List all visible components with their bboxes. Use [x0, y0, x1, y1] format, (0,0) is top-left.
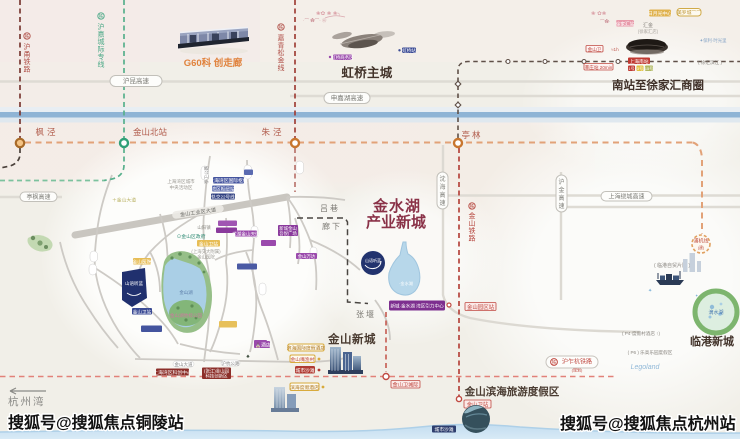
svg-text:沪杭公路: 沪杭公路 — [222, 360, 240, 367]
svg-text:金山万达: 金山万达 — [298, 253, 316, 260]
svg-text:金山医院: 金山医院 — [197, 254, 215, 261]
svg-text:亭林: 亭林 — [461, 130, 482, 140]
svg-text:金山北站: 金山北站 — [133, 127, 168, 137]
svg-text:申嘉湖高速: 申嘉湖高速 — [331, 93, 364, 102]
svg-text:汇金: 汇金 — [643, 22, 653, 29]
svg-text:吾悦广场: 吾悦广场 — [279, 230, 297, 237]
svg-text:搜狐号@搜狐焦点铜陵站: 搜狐号@搜狐焦点铜陵站 — [8, 413, 184, 432]
svg-text:山语听蓝: 山语听蓝 — [365, 257, 381, 263]
svg-text:G60科 创走廊: G60科 创走廊 — [184, 57, 243, 69]
svg-text:沪乍杭铁路: 沪乍杭铁路 — [562, 358, 592, 366]
svg-text:金山铁路: 金山铁路 — [469, 211, 476, 243]
svg-text:( P4·度假村酒店 ↑): ( P4·度假村酒店 ↑) — [622, 330, 660, 337]
svg-text:＋金山大道: ＋金山大道 — [112, 197, 136, 204]
svg-text:杭州湾: 杭州湾 — [8, 395, 46, 408]
svg-text:美罗城⌒⌒: 美罗城⌒⌒ — [677, 9, 701, 16]
svg-text:浦机线: 浦机线 — [693, 238, 708, 245]
svg-text:轨交22号线: 轨交22号线 — [211, 193, 235, 200]
svg-text:15号: 15号 — [645, 65, 653, 71]
svg-text:Legoland: Legoland — [631, 364, 661, 371]
svg-text:金山卫站: 金山卫站 — [199, 241, 218, 248]
svg-text:金山园区站: 金山园区站 — [467, 303, 495, 311]
svg-text:中央活动区: 中央活动区 — [170, 184, 193, 191]
svg-text:铁: 铁 — [552, 359, 557, 366]
svg-text:金山医院: 金山医院 — [132, 259, 151, 266]
svg-text:金山新城: 金山新城 — [327, 332, 376, 346]
svg-text:廊下: 廊下 — [322, 221, 342, 231]
svg-text:搜狐号@搜狐焦点杭州站: 搜狐号@搜狐焦点杭州站 — [560, 414, 736, 433]
svg-text:·金水湖: ·金水湖 — [399, 280, 413, 287]
svg-text:上海南站: 上海南站 — [629, 58, 648, 65]
svg-text:徐家汇站: 徐家汇站 — [616, 20, 635, 27]
svg-text:铁: 铁 — [25, 33, 30, 40]
svg-text:滨海国际度假酒店: 滨海国际度假酒店 — [287, 345, 326, 352]
svg-text:山阳镇: 山阳镇 — [197, 224, 211, 231]
svg-text:⌒✿·: ⌒✿· — [600, 19, 611, 24]
svg-text:金水湖: 金水湖 — [372, 197, 421, 215]
svg-text:金山湖: 金山湖 — [179, 289, 193, 296]
svg-text:1号: 1号 — [628, 65, 634, 71]
svg-text:城市沙滩: 城市沙滩 — [295, 367, 314, 374]
svg-text:虹桥商务区: 虹桥商务区 — [332, 54, 355, 61]
svg-text:金山卫站: 金山卫站 — [133, 308, 152, 315]
svg-text:滨海度假酒店: 滨海度假酒店 — [290, 384, 319, 391]
svg-text:上海湾区科创中心: 上海湾区科创中心 — [153, 369, 192, 376]
svg-text:金山湖地标公园: 金山湖地标公园 — [170, 312, 203, 319]
svg-text:枫泾: 枫泾 — [35, 127, 58, 137]
svg-text:❀ ✿❀: ❀ ✿❀ — [591, 10, 607, 17]
svg-text:金山嘴渔村: 金山嘴渔村 — [291, 356, 315, 363]
svg-text:上海湾区国际枢纽: 上海湾区国际枢纽 — [209, 177, 248, 184]
svg-text:虹桥站: 虹桥站 — [402, 47, 416, 54]
svg-text:虹桥主城: 虹桥主城 — [341, 65, 392, 80]
svg-text:铁: 铁 — [470, 203, 475, 210]
svg-text:上海湾区城市: 上海湾区城市 — [167, 178, 195, 185]
svg-text:沪甬铁路: 沪甬铁路 — [24, 42, 31, 74]
svg-text:铁: 铁 — [99, 13, 104, 20]
svg-text:≈1h: ≈1h — [611, 47, 619, 52]
svg-text:朱泾: 朱泾 — [261, 127, 284, 137]
svg-text:莘庄站 20min: 莘庄站 20min — [585, 64, 613, 71]
svg-text:张堰: 张堰 — [356, 309, 376, 319]
svg-text:( 徐汇滨江 ): ( 徐汇滨江 ) — [698, 59, 722, 66]
svg-text:·⌒ ✿⌒· ❀: ·⌒ ✿⌒· ❀ — [303, 17, 327, 24]
svg-text:山语听蓝: 山语听蓝 — [125, 280, 143, 287]
svg-text:铁: 铁 — [279, 24, 284, 31]
svg-text:沪嘉城际专线: 沪嘉城际专线 — [98, 22, 105, 69]
svg-text:嘉青松金线: 嘉青松金线 — [278, 33, 285, 72]
svg-text:上海绕城高速: 上海绕城高速 — [608, 193, 644, 201]
svg-text:亭枫高速: 亭枫高速 — [26, 193, 50, 201]
svg-text:南站至徐家汇商圈: 南站至徐家汇商圈 — [612, 78, 704, 92]
svg-text:⊙金山区政府: ⊙金山区政府 — [177, 233, 206, 240]
svg-text:( P6 ) 乐高乐园度假区: ( P6 ) 乐高乐园度假区 — [628, 349, 673, 356]
svg-text:(徐家汇店): (徐家汇店) — [638, 28, 659, 35]
svg-text:产业新城: 产业新城 — [366, 213, 426, 231]
svg-text:✦保利·时光里: ✦保利·时光里 — [699, 37, 727, 44]
svg-text:金山卫: 金山卫 — [588, 46, 602, 53]
svg-text:沪昆高速: 沪昆高速 — [123, 76, 150, 85]
svg-text:龙湖金山天街: 龙湖金山天街 — [232, 230, 260, 237]
svg-text:金山滨海旅游度假区: 金山滨海旅游度假区 — [464, 385, 560, 398]
svg-text:3号: 3号 — [637, 65, 643, 71]
svg-text:金山大道: 金山大道 — [175, 361, 193, 368]
svg-text:湾区枢纽站: 湾区枢纽站 — [212, 185, 235, 192]
svg-text:⛪酒店: ⛪酒店 — [255, 342, 271, 349]
svg-text:科技创新区: 科技创新区 — [206, 373, 229, 380]
svg-text:(规划): (规划) — [572, 367, 583, 373]
svg-text:临港新城: 临港新城 — [690, 334, 734, 348]
svg-text:新城·金水湖 湾区引力中心: 新城·金水湖 湾区引力中心 — [390, 302, 444, 309]
svg-text:(建): (建) — [698, 245, 705, 250]
svg-text:✦: ✦ — [648, 288, 652, 294]
svg-text:吕巷: 吕巷 — [320, 204, 340, 213]
svg-text:滴水湖: 滴水湖 — [708, 309, 723, 316]
svg-text:日月光中心: 日月光中心 — [648, 10, 672, 17]
svg-text:金山卫城际: 金山卫城际 — [393, 381, 419, 389]
svg-text:城市沙滩: 城市沙滩 — [434, 426, 453, 433]
